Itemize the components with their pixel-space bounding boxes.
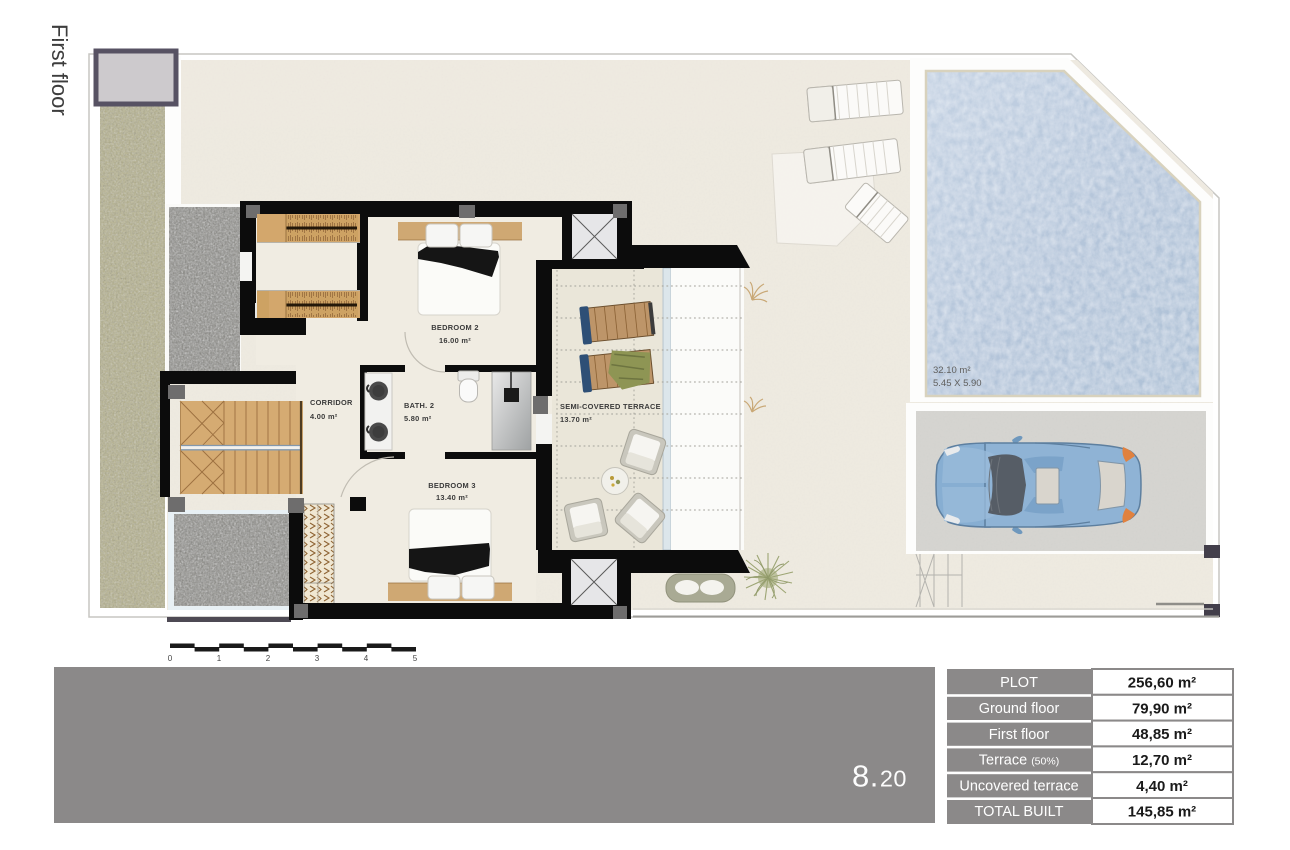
svg-text:4.00 m²: 4.00 m² — [310, 412, 338, 421]
svg-text:4: 4 — [364, 654, 369, 663]
svg-text:BEDROOM 3: BEDROOM 3 — [428, 481, 475, 490]
svg-text:12,70 m²: 12,70 m² — [1132, 752, 1192, 769]
svg-text:Ground floor: Ground floor — [979, 701, 1060, 717]
svg-text:145,85 m²: 145,85 m² — [1128, 804, 1196, 821]
svg-text:16.00 m²: 16.00 m² — [439, 336, 471, 345]
svg-text:0: 0 — [168, 654, 173, 663]
svg-text:4,40 m²: 4,40 m² — [1136, 778, 1188, 795]
svg-text:TOTAL BUILT: TOTAL BUILT — [975, 804, 1064, 820]
svg-text:48,85 m²: 48,85 m² — [1132, 726, 1192, 743]
svg-text:BATH. 2: BATH. 2 — [404, 401, 434, 410]
svg-text:1: 1 — [217, 654, 222, 663]
svg-text:BEDROOM 2: BEDROOM 2 — [431, 323, 478, 332]
svg-text:First floor: First floor — [989, 727, 1050, 743]
svg-text:Uncovered terrace: Uncovered terrace — [959, 779, 1078, 795]
svg-text:2: 2 — [266, 654, 271, 663]
svg-text:3: 3 — [315, 654, 320, 663]
svg-text:5.80 m²: 5.80 m² — [404, 414, 432, 423]
svg-text:13.40 m²: 13.40 m² — [436, 493, 468, 502]
svg-text:SEMI-COVERED TERRACE: SEMI-COVERED TERRACE — [560, 402, 661, 411]
svg-text:First floor: First floor — [47, 24, 72, 116]
svg-text:Terrace (50%): Terrace (50%) — [979, 753, 1059, 769]
svg-text:PLOT: PLOT — [1000, 675, 1038, 691]
svg-text:79,90 m²: 79,90 m² — [1132, 701, 1192, 718]
svg-text:32.10 m²: 32.10 m² — [933, 365, 971, 376]
svg-text:256,60 m²: 256,60 m² — [1128, 675, 1196, 692]
svg-text:CORRIDOR: CORRIDOR — [310, 398, 353, 407]
svg-text:13.70 m²: 13.70 m² — [560, 415, 592, 424]
svg-text:5: 5 — [413, 654, 418, 663]
svg-text:5.45 X 5.90: 5.45 X 5.90 — [933, 378, 982, 389]
